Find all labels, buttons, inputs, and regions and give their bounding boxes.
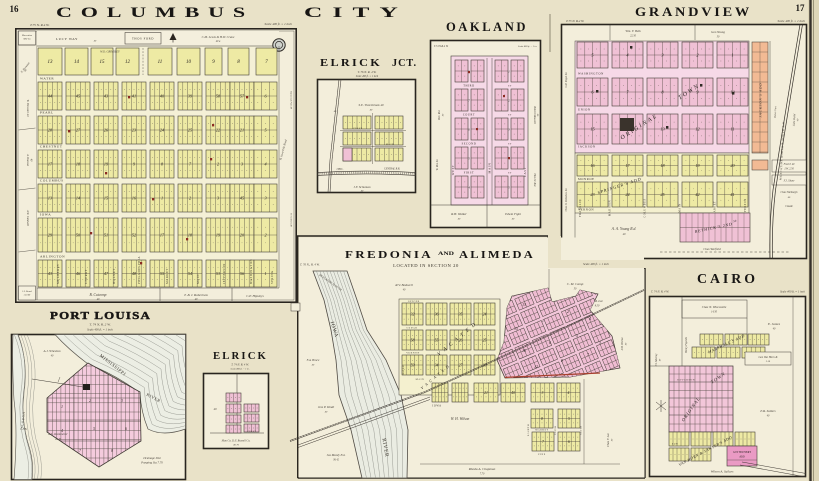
svg-text:55: 55	[435, 338, 439, 342]
svg-text:16: 16	[10, 4, 20, 14]
svg-text:6: 6	[468, 128, 470, 132]
svg-text:LOCATED IN SECTION 20: LOCATED IN SECTION 20	[393, 263, 459, 268]
svg-text:2: 2	[217, 162, 219, 167]
svg-text:5: 5	[508, 186, 510, 190]
svg-text:43: 43	[104, 94, 108, 99]
svg-text:Thos W. Roe: Thos W. Roe	[533, 173, 536, 187]
svg-text:R.H. Walker: R.H. Walker	[450, 212, 467, 216]
svg-text:CHIC.: CHIC.	[337, 168, 344, 171]
svg-text:IOWA: IOWA	[432, 405, 441, 408]
svg-text:36: 36	[435, 312, 439, 316]
svg-text:23: 23	[590, 192, 594, 197]
svg-text:C.F.B.: C.F.B.	[20, 428, 27, 431]
svg-text:22.50: 22.50	[630, 34, 637, 37]
svg-text:ARLINGTON: ARLINGTON	[40, 255, 65, 259]
svg-text:3: 3	[508, 128, 510, 132]
svg-text:2: 2	[89, 399, 91, 403]
svg-text:3: 3	[264, 196, 266, 201]
svg-text:59: 59	[411, 363, 415, 367]
svg-text:24: 24	[483, 312, 487, 316]
svg-text:12: 12	[534, 365, 538, 369]
svg-text:FIRST: FIRST	[464, 172, 475, 175]
svg-text:3: 3	[217, 196, 219, 201]
svg-text:17: 17	[796, 3, 806, 13]
svg-text:ST: ST	[508, 114, 512, 117]
svg-text:41: 41	[730, 192, 734, 197]
svg-text:S.E. Thornbrook 40: S.E. Thornbrook 40	[358, 103, 383, 107]
svg-text:25: 25	[660, 192, 664, 197]
svg-text:3: 3	[599, 341, 601, 345]
svg-text:1: 1	[542, 319, 544, 323]
svg-text:40: 40	[214, 407, 218, 411]
svg-text:Wm. F. Beik: Wm. F. Beik	[625, 29, 641, 33]
svg-text:J.F. Schuman: J.F. Schuman	[353, 185, 370, 189]
svg-text:2: 2	[508, 99, 510, 103]
svg-text:COLUMBUS: COLUMBUS	[56, 5, 254, 21]
svg-text:14: 14	[74, 60, 80, 65]
svg-text:ELM: ELM	[672, 444, 678, 446]
svg-text:6: 6	[568, 440, 570, 444]
svg-text:G.P. Paget 40: G.P. Paget 40	[565, 72, 568, 88]
svg-text:MONROE: MONROE	[578, 177, 595, 181]
svg-text:MAIN: MAIN	[196, 274, 200, 284]
svg-text:Mun Co. D.F. Russell Co.: Mun Co. D.F. Russell Co.	[221, 440, 251, 443]
svg-text:WALNUT: WALNUT	[112, 268, 116, 284]
svg-text:22: 22	[216, 128, 220, 133]
svg-text:1: 1	[264, 271, 266, 276]
svg-text:Chas F. Lee: Chas F. Lee	[606, 432, 610, 446]
svg-text:LUCY WAY: LUCY WAY	[56, 37, 78, 41]
svg-text:SPICER: SPICER	[408, 300, 420, 303]
svg-text:WASHINGTON: WASHINGTON	[578, 72, 604, 76]
svg-text:J.W. 2.50: J.W. 2.50	[784, 168, 794, 171]
svg-text:40.70: 40.70	[55, 438, 62, 441]
svg-text:GOV HOOVER'S: GOV HOOVER'S	[733, 451, 752, 454]
svg-text:ADD: ADD	[738, 456, 744, 459]
svg-text:40 a: 40 a	[216, 40, 221, 43]
svg-text:FIRST: FIRST	[354, 128, 363, 130]
svg-text:52: 52	[132, 233, 136, 238]
svg-text:58: 58	[411, 338, 415, 342]
svg-text:40: 40	[511, 391, 515, 395]
svg-text:Jess P. Kindt: Jess P. Kindt	[318, 405, 334, 409]
svg-text:C.P. Hipsleys: C.P. Hipsleys	[246, 294, 264, 298]
svg-text:54: 54	[188, 271, 192, 276]
svg-text:W.D. GRIMSLEY: W.D. GRIMSLEY	[100, 51, 120, 54]
svg-text:PINE: PINE	[538, 454, 546, 456]
svg-text:IOWA: IOWA	[40, 213, 51, 217]
svg-text:THOS FORD: THOS FORD	[132, 37, 154, 41]
svg-text:A. A. Young R.d.: A. A. Young R.d.	[611, 227, 637, 231]
svg-text:JACKSON'S ADD: JACKSON'S ADD	[759, 82, 763, 117]
svg-text:COLUMBUS: COLUMBUS	[40, 179, 64, 183]
svg-text:CITY: CITY	[304, 5, 408, 21]
svg-text:MAIN: MAIN	[416, 378, 425, 381]
svg-text:FREDONIA: FREDONIA	[345, 249, 433, 261]
svg-text:39.42: 39.42	[333, 458, 340, 461]
svg-text:ST: ST	[508, 143, 512, 146]
svg-text:J.M. Horne: J.M. Horne	[620, 337, 624, 351]
svg-text:C. M. Camp: C. M. Camp	[567, 282, 584, 286]
svg-text:Rhoda A. Chapman: Rhoda A. Chapman	[468, 467, 496, 471]
svg-text:Scale 400 ft. = 1 inch: Scale 400 ft. = 1 inch	[87, 328, 113, 332]
svg-text:J.S. Brand: J.S. Brand	[22, 291, 32, 293]
svg-text:WATER: WATER	[40, 77, 54, 81]
svg-text:MARKET: MARKET	[165, 268, 169, 284]
svg-text:JEFFERSON: JEFFERSON	[222, 263, 226, 284]
svg-text:FIFTH: FIFTH	[555, 425, 557, 434]
svg-text:23: 23	[132, 128, 136, 133]
svg-text:25: 25	[188, 128, 192, 133]
svg-text:Wilson A. Sallars: Wilson A. Sallars	[711, 470, 734, 474]
svg-text:5: 5	[264, 128, 266, 133]
svg-text:3: 3	[542, 391, 544, 395]
svg-text:Scale 400 ft. = 1 inch: Scale 400 ft. = 1 inch	[583, 262, 609, 266]
svg-text:FIRST: FIRST	[248, 431, 257, 433]
svg-text:4: 4	[568, 391, 570, 395]
svg-text:Chas Nieburgh: Chas Nieburgh	[781, 191, 799, 194]
svg-text:Geo Van Horn &: Geo Van Horn &	[758, 356, 778, 359]
svg-text:Chas N. Wisecastle: Chas N. Wisecastle	[702, 305, 727, 309]
svg-text:24: 24	[160, 128, 164, 133]
svg-text:ALIMEDA: ALIMEDA	[459, 249, 535, 261]
svg-text:GRANDVIEW: GRANDVIEW	[635, 4, 752, 19]
svg-text:6: 6	[125, 427, 127, 431]
svg-text:T.73 N. R.2 W.: T.73 N. R.2 W.	[566, 19, 585, 23]
svg-text:WEST: WEST	[451, 165, 455, 176]
svg-text:A.L. Kammerer: A.L. Kammerer	[47, 432, 68, 436]
svg-text:Chas O. Dikeview 40: Chas O. Dikeview 40	[565, 188, 568, 211]
svg-text:15: 15	[514, 327, 518, 331]
svg-text:Jas Manly Est.: Jas Manly Est.	[327, 453, 346, 457]
svg-text:Scale 400 ft. = 1 inch: Scale 400 ft. = 1 inch	[780, 290, 805, 294]
svg-text:45: 45	[76, 94, 80, 99]
svg-text:7: 7	[79, 449, 81, 453]
svg-text:10: 10	[186, 60, 192, 65]
svg-text:A.J. Wheelan: A.J. Wheelan	[43, 349, 61, 353]
svg-text:1: 1	[161, 196, 163, 201]
svg-text:UNION: UNION	[578, 108, 591, 112]
svg-text:OAKLAND: OAKLAND	[446, 20, 528, 34]
svg-text:B. Cutcomp: B. Cutcomp	[90, 293, 107, 297]
svg-text:51: 51	[104, 233, 108, 238]
svg-text:FOURTH: FOURTH	[528, 424, 530, 436]
svg-text:SIXTH: SIXTH	[581, 425, 583, 434]
svg-text:MADISON: MADISON	[609, 200, 612, 216]
svg-text:EAST: EAST	[523, 167, 527, 177]
svg-text:A.W. Caldwell: A.W. Caldwell	[26, 209, 29, 226]
svg-text:COLUMBUS: COLUMBUS	[644, 198, 647, 217]
svg-text:15: 15	[100, 60, 106, 65]
svg-text:55: 55	[160, 271, 164, 276]
svg-text:Scale 400 ft. = 1 inch: Scale 400 ft. = 1 inch	[778, 19, 806, 23]
svg-text:1: 1	[508, 70, 510, 74]
svg-text:PHILADELPHIA: PHILADELPHIA	[137, 256, 141, 284]
svg-text:E.R. Sallars: E.R. Sallars	[759, 409, 776, 413]
svg-text:WATER: WATER	[402, 365, 405, 375]
svg-text:24: 24	[625, 192, 629, 197]
svg-text:5: 5	[568, 417, 570, 421]
svg-text:42: 42	[695, 192, 699, 197]
svg-text:Scale 400 ft. = 1 inch: Scale 400 ft. = 1 inch	[356, 75, 379, 78]
svg-text:11: 11	[730, 127, 734, 132]
svg-text:Drainage Dist: Drainage Dist	[142, 456, 160, 460]
svg-text:15: 15	[104, 196, 108, 201]
svg-text:4: 4	[468, 186, 470, 190]
svg-text:T.75 N. R.4 W.: T.75 N. R.4 W.	[30, 23, 50, 27]
svg-text:34: 34	[435, 363, 439, 367]
svg-text:Scale 400 ft. = 1 in.: Scale 400 ft. = 1 in.	[518, 45, 537, 48]
svg-text:W. Roe 40: W. Roe 40	[436, 159, 439, 171]
svg-text:13: 13	[48, 60, 54, 65]
svg-text:2: 2	[189, 196, 191, 201]
svg-text:T. & J. Robertson: T. & J. Robertson	[184, 293, 208, 297]
svg-text:14.50: 14.50	[711, 311, 718, 314]
svg-text:W. H. Wilson: W. H. Wilson	[451, 417, 470, 421]
svg-text:9.50: 9.50	[595, 304, 600, 307]
svg-text:T.74 N.R.4 W.: T.74 N.R.4 W.	[434, 45, 449, 48]
svg-text:3: 3	[121, 399, 123, 403]
svg-text:C.M. Lewis & H.W. Crane: C.M. Lewis & H.W. Crane	[202, 35, 235, 39]
svg-text:JEFFERSON: JEFFERSON	[677, 379, 695, 382]
svg-text:35: 35	[459, 312, 463, 316]
svg-text:F.A. Bruce: F.A. Bruce	[306, 358, 320, 362]
svg-text:E. James: E. James	[767, 322, 781, 326]
svg-text:CEDAR: CEDAR	[406, 327, 417, 330]
svg-text:Scale 400 ft. = 1 inch: Scale 400 ft. = 1 inch	[265, 22, 293, 26]
svg-text:A. Duncan: A. Duncan	[26, 153, 29, 167]
svg-text:21: 21	[484, 391, 488, 395]
svg-text:MULBERRY: MULBERRY	[56, 263, 60, 284]
svg-text:J.S. Murray: J.S. Murray	[655, 353, 658, 367]
svg-text:MAIN: MAIN	[488, 162, 492, 173]
svg-text:ST: ST	[508, 172, 512, 175]
svg-text:Chas Warfield: Chas Warfield	[703, 247, 721, 251]
svg-text:R.V. Bodwell: R.V. Bodwell	[394, 283, 412, 287]
svg-text:45: 45	[240, 196, 244, 201]
svg-text:Robert Maxwell: Robert Maxwell	[533, 105, 536, 123]
svg-text:6: 6	[549, 341, 551, 345]
svg-text:11: 11	[158, 60, 163, 65]
svg-text:5: 5	[576, 334, 578, 338]
svg-text:53: 53	[216, 271, 220, 276]
svg-text:ST: ST	[508, 85, 512, 88]
svg-text:14: 14	[76, 196, 80, 201]
svg-text:Mill Co: Mill Co	[22, 37, 31, 40]
svg-text:F.J. Shaw: F.J. Shaw	[783, 180, 795, 183]
svg-text:THIRD: THIRD	[463, 85, 475, 88]
svg-text:Claude: Claude	[785, 205, 793, 208]
svg-text:13: 13	[48, 196, 52, 201]
svg-text:W. Brewster 40: W. Brewster 40	[26, 100, 29, 118]
svg-text:VERNON: VERNON	[406, 352, 420, 355]
svg-text:Edwin Fight: Edwin Fight	[504, 212, 521, 216]
svg-text:Scale 400 ft. = 1 in.: Scale 400 ft. = 1 in.	[231, 368, 250, 371]
svg-text:MAIN: MAIN	[386, 143, 394, 146]
svg-text:5: 5	[93, 427, 95, 431]
svg-text:WASHINGTON: WASHINGTON	[249, 258, 253, 284]
svg-text:1: 1	[731, 53, 733, 58]
svg-text:40 70: 40 70	[233, 444, 239, 447]
svg-text:16: 16	[522, 349, 526, 353]
svg-text:8: 8	[541, 417, 543, 421]
svg-text:mill 40: mill 40	[24, 294, 31, 297]
svg-text:Fred T. 40: Fred T. 40	[783, 163, 795, 166]
svg-text:CENTRAL R.R.: CENTRAL R.R.	[384, 168, 401, 171]
svg-text:13: 13	[522, 303, 526, 307]
svg-text:43: 43	[48, 271, 52, 276]
svg-text:21: 21	[240, 128, 244, 133]
svg-text:T. 76 N. R. 4 W.: T. 76 N. R. 4 W.	[358, 70, 377, 74]
svg-text:PEARL: PEARL	[40, 111, 54, 115]
svg-text:2: 2	[567, 310, 569, 314]
svg-text:AND: AND	[438, 251, 454, 257]
svg-text:ELRICK: ELRICK	[213, 351, 268, 362]
svg-text:CAIRO: CAIRO	[697, 272, 758, 287]
svg-text:COURT: COURT	[463, 114, 475, 117]
svg-text:JCT.: JCT.	[392, 58, 417, 69]
svg-text:Stanwood Pike 40: Stanwood Pike 40	[290, 91, 293, 110]
svg-text:4: 4	[589, 317, 591, 321]
svg-text:MAIN: MAIN	[679, 203, 682, 212]
svg-text:4: 4	[264, 162, 266, 167]
svg-text:FRANKLIN: FRANKLIN	[579, 199, 582, 217]
svg-text:Geo Young: Geo Young	[711, 30, 725, 34]
svg-text:12: 12	[125, 60, 131, 65]
svg-text:2: 2	[264, 233, 266, 238]
svg-text:7.70: 7.70	[480, 473, 485, 476]
svg-text:Henry Figends: Henry Figends	[685, 337, 688, 354]
svg-text:JACKSON: JACKSON	[578, 145, 596, 149]
svg-text:7: 7	[468, 99, 470, 103]
svg-text:PORT LOUISA: PORT LOUISA	[50, 310, 151, 322]
svg-text:T. 74 N. R. 4 W.: T. 74 N. R. 4 W.	[231, 364, 249, 367]
svg-text:41: 41	[132, 94, 136, 99]
svg-text:CHESTNUT: CHESTNUT	[40, 145, 63, 149]
svg-text:25: 25	[483, 338, 487, 342]
svg-text:W. Gilbert 40: W. Gilbert 40	[290, 213, 293, 227]
svg-text:5: 5	[468, 157, 470, 161]
svg-text:MARKET: MARKET	[535, 429, 548, 432]
svg-text:1: 1	[61, 405, 63, 409]
svg-text:SPRING: SPRING	[270, 270, 274, 284]
svg-text:ELRICK: ELRICK	[320, 58, 382, 69]
svg-text:CHERRY: CHERRY	[84, 269, 88, 284]
svg-text:32: 32	[411, 312, 415, 316]
svg-text:44: 44	[48, 94, 52, 99]
svg-text:SECOND: SECOND	[462, 143, 477, 146]
svg-text:T. 74 N. R. 4 W.: T. 74 N. R. 4 W.	[651, 290, 669, 294]
svg-text:3: 3	[241, 162, 243, 167]
svg-text:8: 8	[111, 449, 113, 453]
svg-text:Pumping Sta 7.70: Pumping Sta 7.70	[140, 460, 163, 464]
svg-text:8: 8	[561, 359, 563, 363]
